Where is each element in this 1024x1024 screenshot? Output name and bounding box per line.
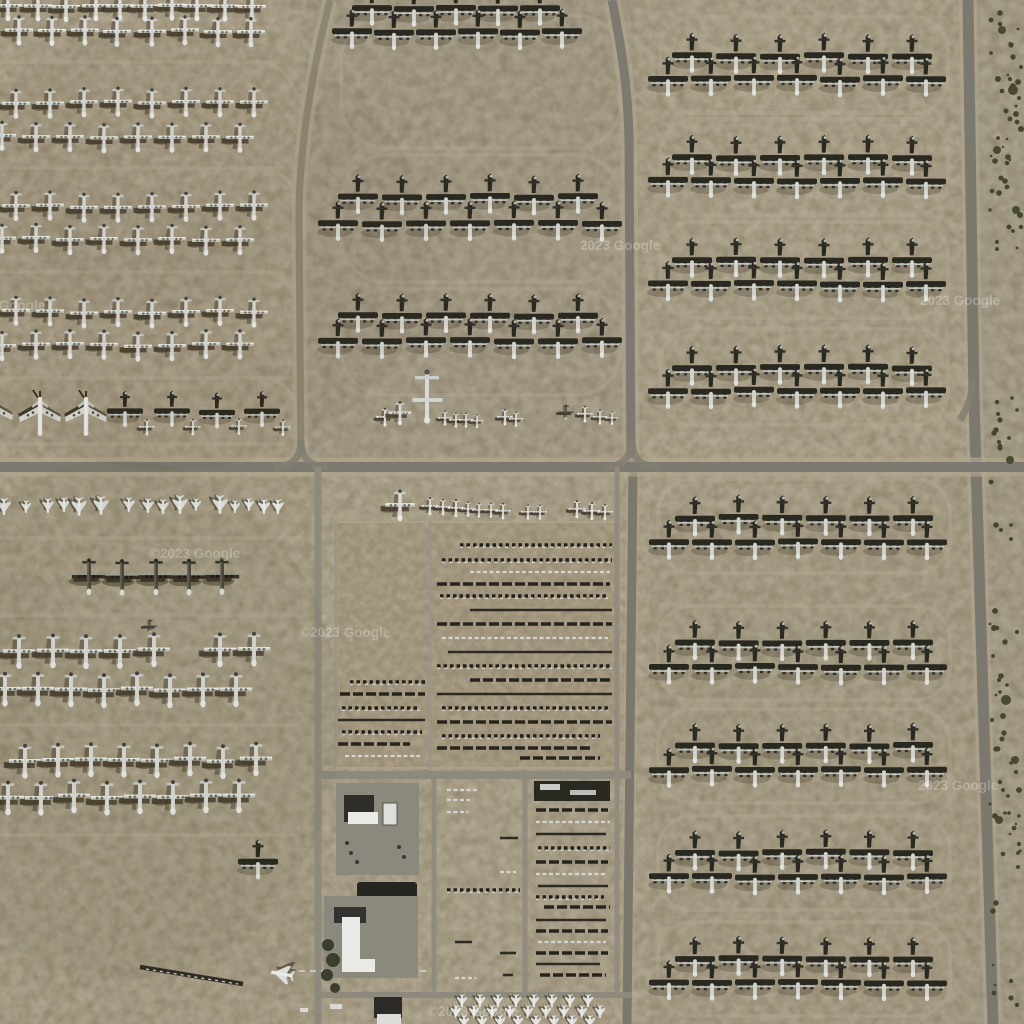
svg-text:©2023 Google: ©2023 Google — [428, 1004, 519, 1019]
svg-text:2023 Google: 2023 Google — [920, 293, 1001, 308]
svg-text:2023 Google: 2023 Google — [580, 238, 661, 253]
svg-text:2023 Google: 2023 Google — [918, 778, 999, 793]
